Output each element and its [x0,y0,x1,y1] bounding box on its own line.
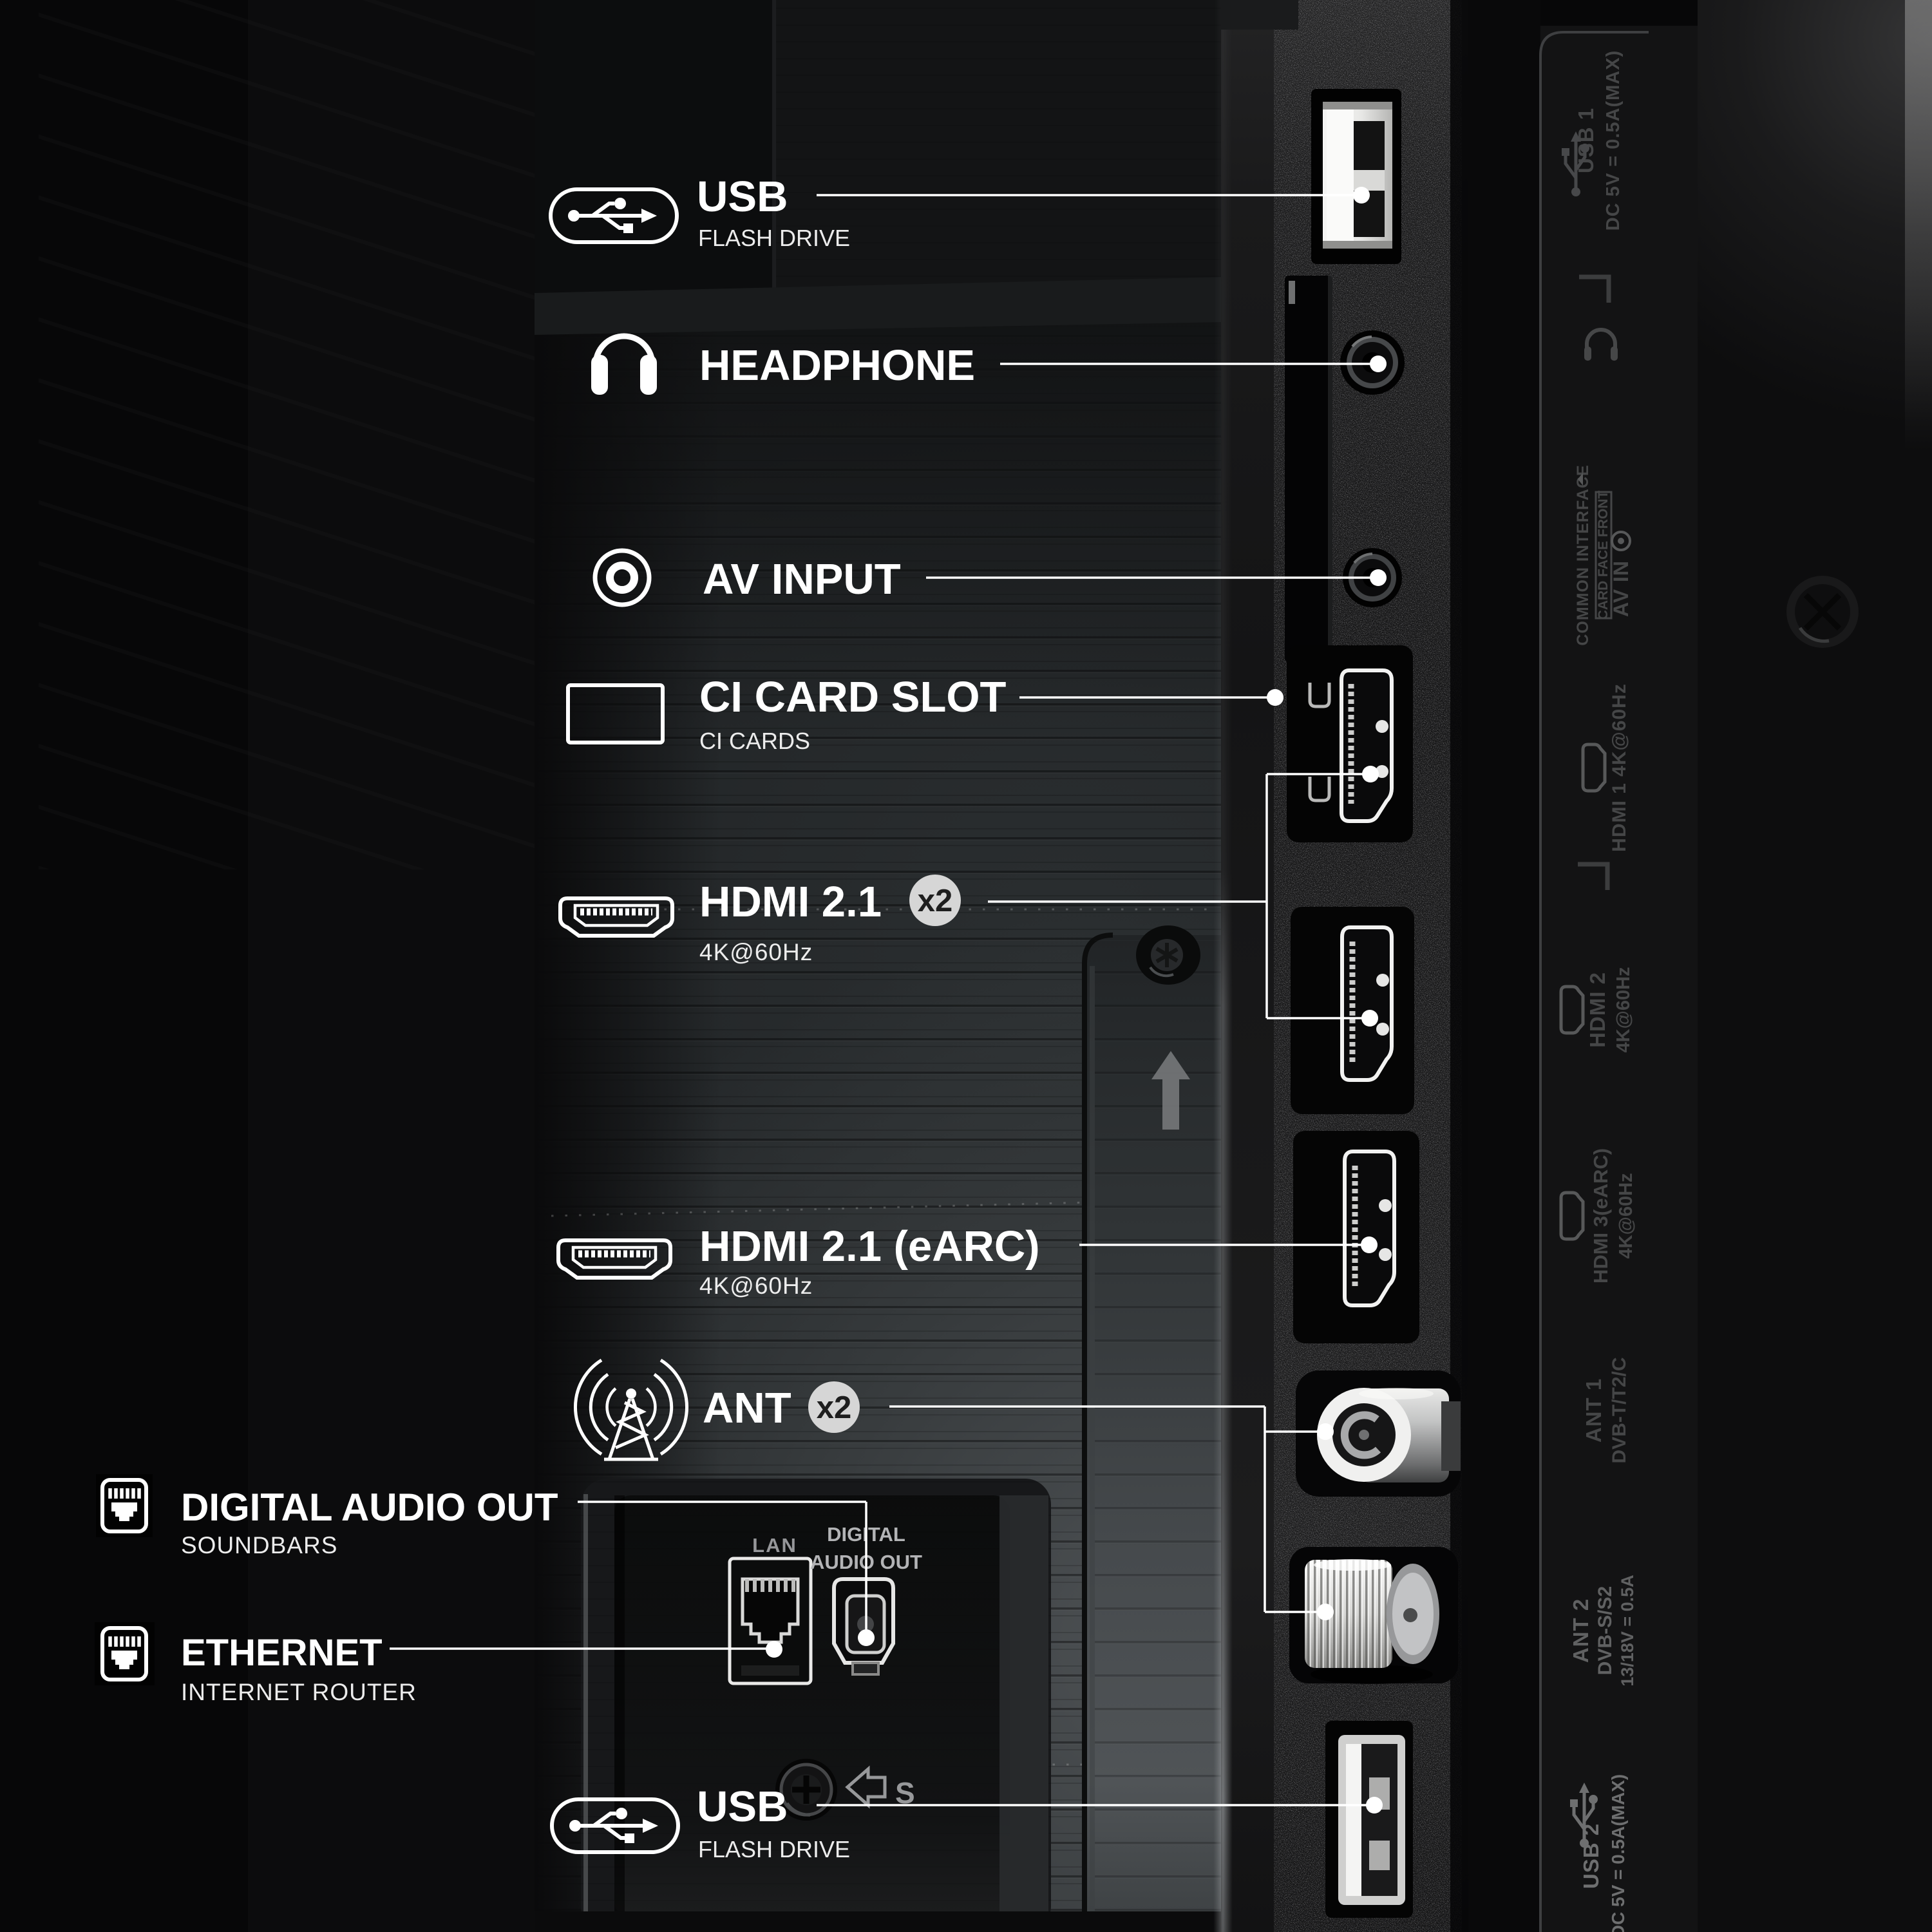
svg-text:INTERNET ROUTER: INTERNET ROUTER [181,1679,417,1705]
svg-text:x2: x2 [817,1390,852,1425]
svg-text:ANT: ANT [703,1384,791,1432]
svg-text:HDMI 2: HDMI 2 [1586,972,1609,1048]
svg-text:ETHERNET: ETHERNET [181,1632,383,1674]
svg-text:HEADPHONE: HEADPHONE [699,341,975,390]
svg-text:13/18V = 0.5A: 13/18V = 0.5A [1618,1575,1637,1686]
svg-text:4K@60Hz: 4K@60Hz [1613,967,1634,1052]
svg-text:AV INPUT: AV INPUT [703,555,901,603]
svg-text:DVB-T/T2/C: DVB-T/T2/C [1609,1358,1630,1464]
svg-text:4K@60Hz: 4K@60Hz [699,939,813,965]
svg-text:ANT 2: ANT 2 [1569,1598,1593,1663]
svg-text:HDMI 1 4K@60Hz: HDMI 1 4K@60Hz [1609,683,1630,852]
svg-text:DC 5V = 0.5A(MAX): DC 5V = 0.5A(MAX) [1603,50,1624,231]
svg-text:DVB-S/S2: DVB-S/S2 [1595,1586,1616,1675]
svg-text:4K@60Hz: 4K@60Hz [699,1273,813,1299]
svg-text:HDMI 3(eARC): HDMI 3(eARC) [1589,1148,1612,1283]
svg-text:DC 5V = 0.5A(MAX): DC 5V = 0.5A(MAX) [1608,1774,1628,1932]
svg-text:CI CARD SLOT: CI CARD SLOT [699,673,1007,721]
svg-text:USB: USB [697,173,788,221]
svg-text:ANT 1: ANT 1 [1582,1378,1605,1443]
svg-text:x2: x2 [918,884,953,918]
svg-text:AV IN: AV IN [1609,560,1633,617]
svg-text:FLASH DRIVE: FLASH DRIVE [698,1836,850,1862]
svg-text:HDMI 2.1 (eARC): HDMI 2.1 (eARC) [699,1222,1040,1271]
svg-text:CI CARDS: CI CARDS [699,728,810,754]
svg-text:SOUNDBARS: SOUNDBARS [181,1532,337,1558]
svg-text:HDMI 2.1: HDMI 2.1 [699,878,882,926]
svg-text:COMMON INTERFACE: COMMON INTERFACE [1574,464,1592,645]
svg-text:4K@60Hz: 4K@60Hz [1616,1173,1636,1258]
svg-text:USB: USB [697,1783,788,1831]
svg-text:FLASH DRIVE: FLASH DRIVE [698,225,850,251]
svg-text:LAN: LAN [752,1534,797,1557]
svg-text:CARD FACE FRONT: CARD FACE FRONT [1596,491,1611,620]
svg-text:DIGITAL AUDIO OUT: DIGITAL AUDIO OUT [181,1486,558,1529]
